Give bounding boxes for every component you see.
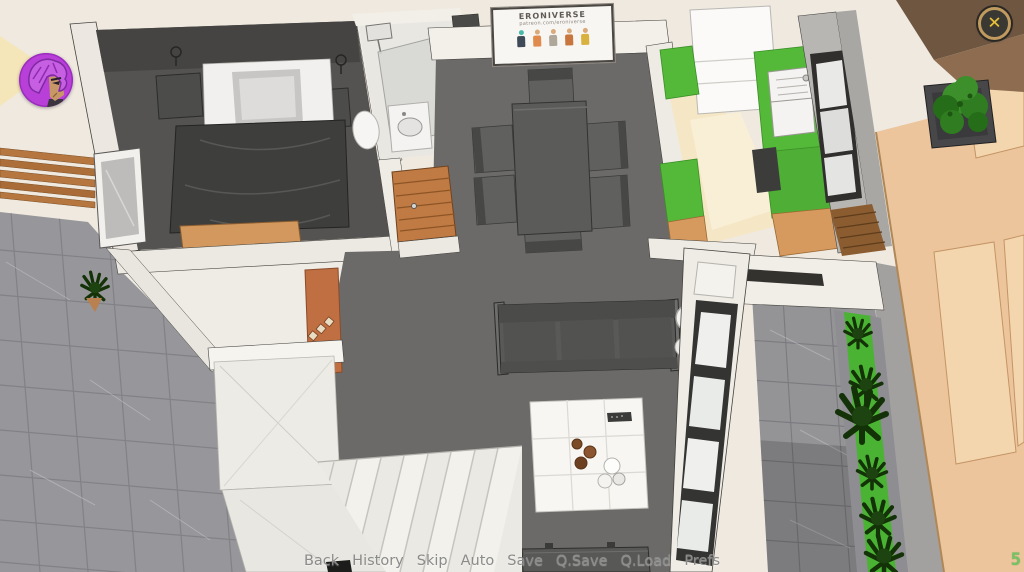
quick-menu-auto[interactable]: Auto bbox=[461, 553, 495, 569]
day-counter: 5 bbox=[1011, 550, 1021, 570]
bedroom-door bbox=[392, 166, 460, 258]
character-avatar[interactable] bbox=[19, 53, 73, 107]
game-screen: ERONIVERSE patreon.com/eroniverse ✕ Back bbox=[0, 0, 1024, 572]
avatar-portrait-icon bbox=[19, 53, 73, 107]
close-button[interactable]: ✕ bbox=[978, 7, 1011, 40]
quick-menu-skip[interactable]: Skip bbox=[417, 553, 448, 569]
quick-menu-qload[interactable]: Q.Load bbox=[621, 553, 672, 569]
poster-figures bbox=[494, 27, 613, 48]
apartment-scene bbox=[0, 0, 1024, 572]
close-icon: ✕ bbox=[987, 15, 1001, 31]
quick-menu-save[interactable]: Save bbox=[507, 553, 543, 569]
quick-menu-prefs[interactable]: Prefs bbox=[684, 553, 720, 569]
quick-menu-history[interactable]: History bbox=[352, 553, 404, 569]
quick-menu-qsave[interactable]: Q.Save bbox=[556, 553, 608, 569]
bedroom bbox=[70, 18, 402, 274]
quick-menu: Back History Skip Auto Save Q.Save Q.Loa… bbox=[0, 549, 1024, 572]
wall-poster: ERONIVERSE patreon.com/eroniverse bbox=[491, 4, 615, 66]
quick-menu-back[interactable]: Back bbox=[304, 553, 339, 569]
